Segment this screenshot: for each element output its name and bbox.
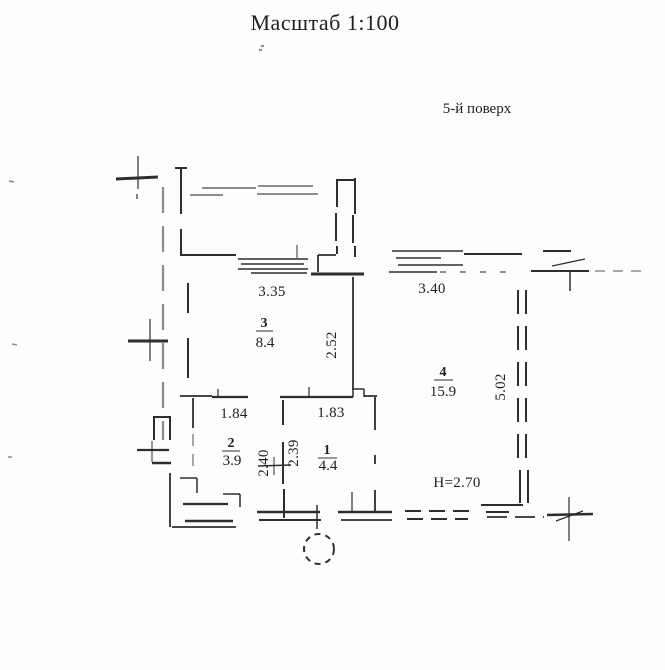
room1-room2-partition: [283, 400, 284, 518]
balcony-right-pier: [336, 178, 356, 257]
axis-cross-bottomright: [547, 514, 593, 515]
dim-room2-width: 1.84: [220, 406, 248, 422]
dim-room1-width: 1.83: [317, 405, 344, 421]
room2-area: 3.9: [223, 453, 242, 469]
scan-artifact-dots: [259, 46, 264, 50]
hall-dim-ticks: [218, 387, 309, 397]
dim-room3-width: 3.35: [258, 284, 285, 300]
axis-cross-topright-tick: [552, 259, 585, 266]
dim-room4-depth: 5.02: [493, 373, 509, 400]
room4-right-wall-dashed: [518, 290, 526, 468]
scale-title: Масштаб 1:100: [251, 10, 400, 35]
stair-steps: [180, 478, 240, 507]
dim-ceiling-height: Н=2.70: [433, 475, 480, 491]
floor-plan-canvas: Масштаб 1:100 5-й поверх: [0, 0, 665, 670]
axis-cross-bottomright-stem: [556, 497, 583, 541]
room2-number: 2: [228, 436, 235, 451]
axis-cross-topleft: [116, 177, 158, 179]
room4-area: 15.9: [430, 384, 456, 400]
room4-bottomright-corner: [481, 470, 528, 505]
dim-room3-depth: 2.52: [324, 331, 340, 358]
balcony-rail-dashes: [190, 186, 318, 195]
scanned-floor-plan-page: Масштаб 1:100 5-й поверх: [0, 0, 665, 670]
room1-area: 4.4: [319, 458, 338, 474]
scan-artifact-specks: [8, 181, 17, 457]
floor-label: 5-й поверх: [443, 101, 512, 117]
bottom-wall-dashed: [405, 511, 470, 519]
dim-room2-depth: 2.40: [256, 449, 272, 476]
balcony-left-wall: [175, 168, 187, 256]
room4-top-wall: [464, 251, 571, 254]
hall-wall-jog: [353, 388, 364, 397]
room3-area: 8.4: [256, 335, 275, 351]
plumbing-riser-circle: [304, 534, 334, 564]
room4-number: 4: [440, 365, 447, 380]
stair-outer-wall: [170, 473, 236, 527]
room4-window-hatch: [389, 251, 463, 272]
dim-room4-width: 3.40: [418, 281, 445, 297]
pier-base-step: [318, 255, 336, 272]
room3-window-hatch: [238, 259, 308, 273]
room1-number: 1: [324, 443, 331, 458]
dim-room1-depth: 2.39: [286, 439, 302, 466]
room3-number: 3: [261, 316, 268, 331]
